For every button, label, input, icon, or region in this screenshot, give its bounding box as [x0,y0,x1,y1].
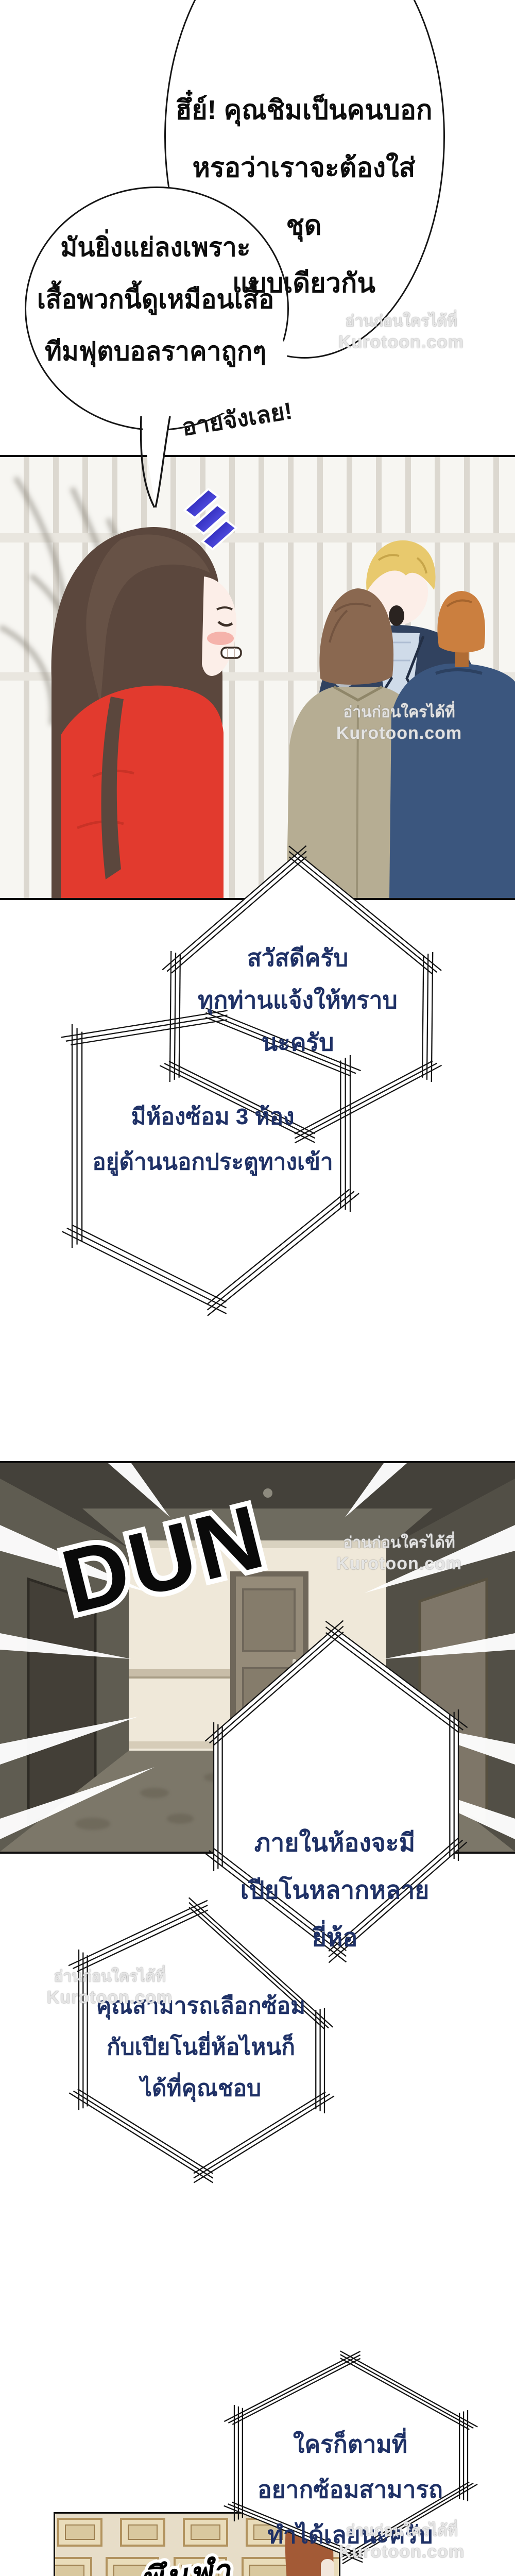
face [202,577,236,676]
hex1-text: สวัสดีครับ ทุกท่านแจ้งให้ทราบ นะครับ [195,937,401,1063]
gritted-teeth [221,648,241,658]
svg-text:DUN: DUN [53,1486,276,1633]
webtoon-page: DUN [0,0,515,2576]
bubble-2-text: มันยิ่งแย่ลงเพราะ เสื้อพวกนี้ดูเหมือนเสื… [32,222,279,378]
blush [207,632,234,645]
hex5-text: ใครก็ตามที่ อยากซ้อมสามารถ ทำได้เลยนะครั… [237,2421,463,2557]
bubble-2-tail [131,410,180,515]
hex-bubbles-1-2 [41,824,448,1334]
hex4-text: คุณสามารถเลือกซ้อม กับเปียโนยี่ห้อไหนก็ … [82,1986,319,2109]
open-mouth [389,605,404,626]
svg-text:พึมพำ: พึมพำ [139,2552,235,2576]
hex3-text: ภายในห้องจะมี เปียโนหลากหลาย ยี่ห้อ [227,1820,443,1962]
hex2-text: มีห้องซ้อม 3 ห้อง อยู่ด้านนอกประตูทางเข้… [76,1094,349,1185]
blue-irritation-mark [178,483,255,558]
